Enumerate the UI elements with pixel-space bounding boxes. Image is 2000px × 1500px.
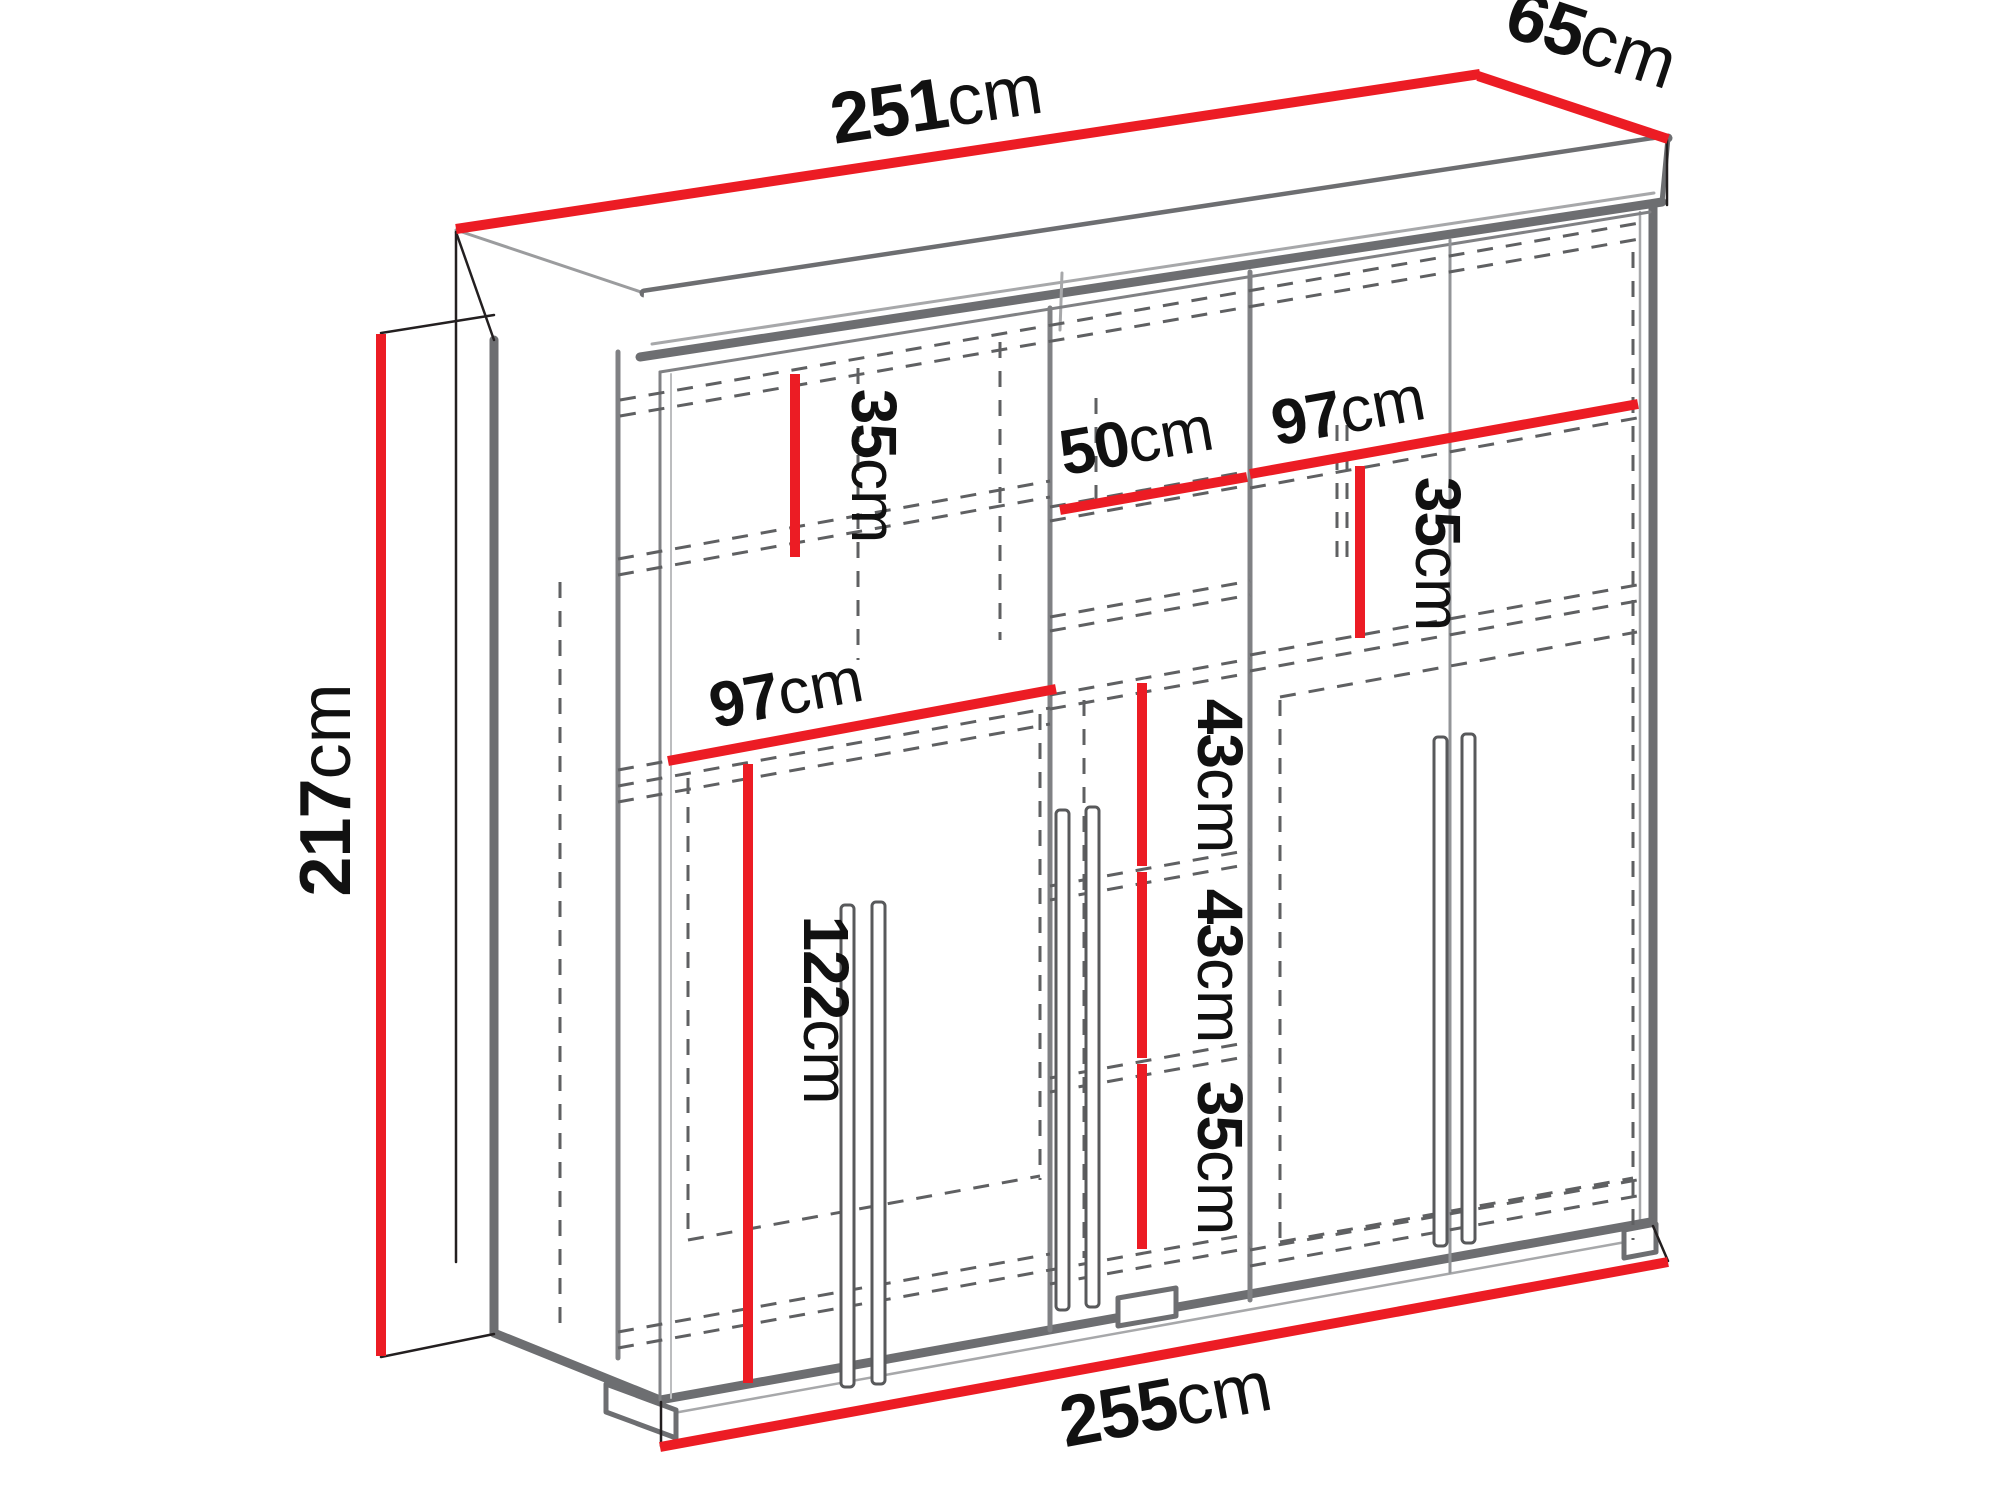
wardrobe-left-side-panel: [456, 232, 494, 1333]
handle-middle-door: [1056, 807, 1099, 1310]
label-middle-35: 35cm: [1184, 1081, 1256, 1236]
label-width-bottom: 255cm: [1054, 1346, 1278, 1463]
left-wall-bottom-edge: [494, 1333, 660, 1400]
dashed-interior-lines: [560, 222, 1645, 1348]
wardrobe-dimension-diagram: 251cm 65cm 217cm 255cm 35cm 50cm 97cm 35…: [0, 0, 2000, 1500]
label-left-top-shelf: 35cm: [838, 389, 910, 544]
label-middle-43b: 43cm: [1184, 889, 1256, 1044]
label-right-top-shelf: 35cm: [1402, 477, 1474, 632]
label-middle-43a: 43cm: [1184, 699, 1256, 854]
label-middle-width: 50cm: [1054, 391, 1219, 489]
wardrobe-right-side-panel: [1640, 204, 1653, 1228]
wardrobe-drawing: [381, 75, 1668, 1446]
diagram-canvas: 251cm 65cm 217cm 255cm 35cm 50cm 97cm 35…: [0, 0, 2000, 1500]
handle-right-door: [1434, 734, 1475, 1246]
label-height-left: 217cm: [286, 683, 366, 896]
label-left-hanging: 122cm: [790, 915, 862, 1104]
